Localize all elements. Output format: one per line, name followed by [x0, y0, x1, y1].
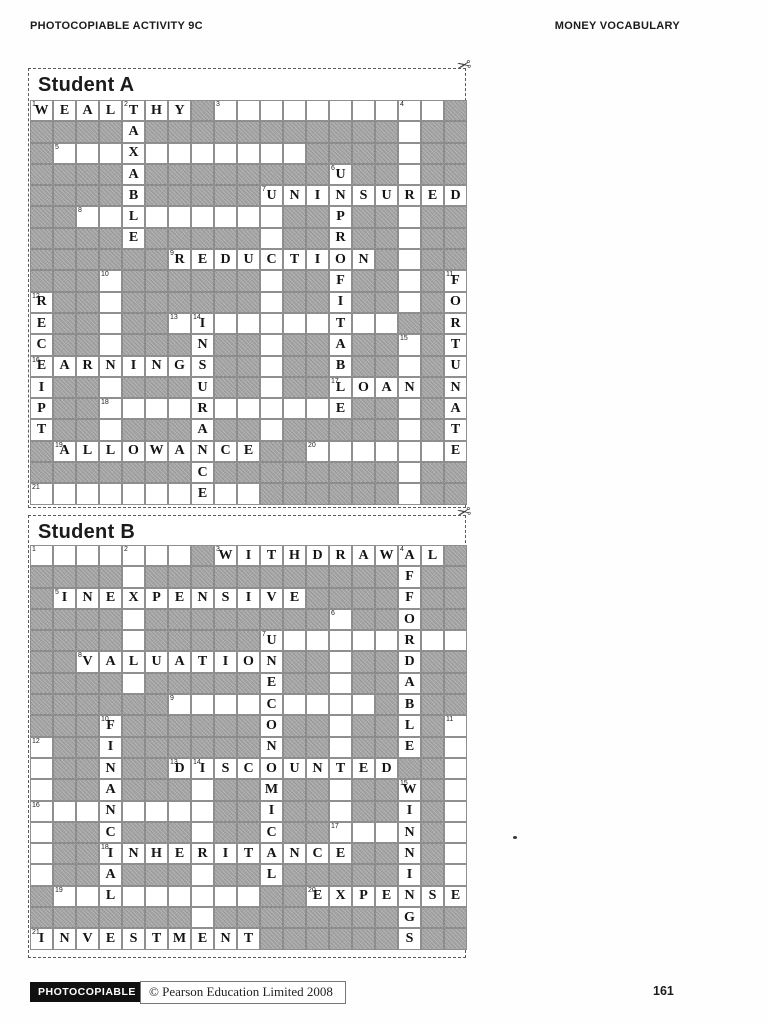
answer-cell[interactable]: O: [260, 715, 283, 736]
answer-cell[interactable]: [145, 886, 168, 907]
answer-cell[interactable]: N: [398, 886, 421, 907]
answer-cell[interactable]: [260, 292, 283, 313]
answer-cell[interactable]: 1W: [30, 100, 53, 121]
answer-cell[interactable]: [168, 483, 191, 504]
answer-cell[interactable]: [76, 545, 99, 566]
answer-cell[interactable]: L: [122, 651, 145, 672]
answer-cell[interactable]: [283, 143, 306, 164]
answer-cell[interactable]: [53, 801, 76, 822]
answer-cell[interactable]: R: [76, 356, 99, 377]
answer-cell[interactable]: D: [444, 185, 467, 206]
answer-cell[interactable]: 21I: [30, 928, 53, 949]
answer-cell[interactable]: N: [191, 441, 214, 462]
answer-cell[interactable]: T: [260, 545, 283, 566]
answer-cell[interactable]: T: [145, 928, 168, 949]
answer-cell[interactable]: A: [329, 334, 352, 355]
answer-cell[interactable]: [214, 313, 237, 334]
answer-cell[interactable]: [444, 758, 467, 779]
answer-cell[interactable]: L: [76, 441, 99, 462]
answer-cell[interactable]: 19A: [53, 441, 76, 462]
answer-cell[interactable]: 19: [53, 886, 76, 907]
answer-cell[interactable]: 18I: [99, 843, 122, 864]
answer-cell[interactable]: E: [421, 185, 444, 206]
answer-cell[interactable]: O: [398, 609, 421, 630]
answer-cell[interactable]: X: [122, 588, 145, 609]
answer-cell[interactable]: [145, 545, 168, 566]
answer-cell[interactable]: R: [191, 398, 214, 419]
answer-cell[interactable]: [329, 694, 352, 715]
answer-cell[interactable]: [76, 886, 99, 907]
answer-cell[interactable]: 12R: [30, 292, 53, 313]
answer-cell[interactable]: E: [99, 588, 122, 609]
answer-cell[interactable]: [99, 545, 122, 566]
answer-cell[interactable]: 21: [30, 483, 53, 504]
answer-cell[interactable]: V: [260, 588, 283, 609]
answer-cell[interactable]: [191, 822, 214, 843]
answer-cell[interactable]: [329, 715, 352, 736]
answer-cell[interactable]: L: [421, 545, 444, 566]
answer-cell[interactable]: [283, 630, 306, 651]
answer-cell[interactable]: [122, 398, 145, 419]
answer-cell[interactable]: A: [375, 377, 398, 398]
answer-cell[interactable]: [306, 100, 329, 121]
answer-cell[interactable]: V: [76, 928, 99, 949]
answer-cell[interactable]: [283, 313, 306, 334]
answer-cell[interactable]: H: [145, 100, 168, 121]
answer-cell[interactable]: 2: [122, 545, 145, 566]
answer-cell[interactable]: [375, 313, 398, 334]
answer-cell[interactable]: U: [191, 377, 214, 398]
answer-cell[interactable]: C: [30, 334, 53, 355]
answer-cell[interactable]: I: [237, 545, 260, 566]
answer-cell[interactable]: E: [191, 928, 214, 949]
answer-cell[interactable]: [191, 206, 214, 227]
answer-cell[interactable]: E: [352, 758, 375, 779]
answer-cell[interactable]: [122, 886, 145, 907]
answer-cell[interactable]: C: [260, 694, 283, 715]
answer-cell[interactable]: [214, 206, 237, 227]
answer-cell[interactable]: B: [329, 356, 352, 377]
answer-cell[interactable]: F: [398, 588, 421, 609]
answer-cell[interactable]: [260, 419, 283, 440]
answer-cell[interactable]: [122, 609, 145, 630]
answer-cell[interactable]: 1: [30, 545, 53, 566]
answer-cell[interactable]: 8: [76, 206, 99, 227]
answer-cell[interactable]: A: [398, 673, 421, 694]
answer-cell[interactable]: N: [214, 928, 237, 949]
answer-cell[interactable]: 20E: [306, 886, 329, 907]
answer-cell[interactable]: A: [99, 864, 122, 885]
answer-cell[interactable]: H: [283, 545, 306, 566]
answer-cell[interactable]: I: [306, 249, 329, 270]
answer-cell[interactable]: I: [99, 737, 122, 758]
answer-cell[interactable]: 14I: [191, 758, 214, 779]
answer-cell[interactable]: 15W: [398, 779, 421, 800]
answer-cell[interactable]: [53, 483, 76, 504]
answer-cell[interactable]: [99, 483, 122, 504]
answer-cell[interactable]: [237, 100, 260, 121]
answer-cell[interactable]: D: [375, 758, 398, 779]
answer-cell[interactable]: 8V: [76, 651, 99, 672]
answer-cell[interactable]: [375, 822, 398, 843]
answer-cell[interactable]: D: [214, 249, 237, 270]
answer-cell[interactable]: [191, 864, 214, 885]
answer-cell[interactable]: [237, 886, 260, 907]
answer-cell[interactable]: [329, 779, 352, 800]
answer-cell[interactable]: [237, 694, 260, 715]
answer-cell[interactable]: A: [99, 779, 122, 800]
answer-cell[interactable]: W: [145, 441, 168, 462]
answer-cell[interactable]: O: [444, 292, 467, 313]
answer-cell[interactable]: [398, 249, 421, 270]
answer-cell[interactable]: [260, 377, 283, 398]
answer-cell[interactable]: [145, 398, 168, 419]
answer-cell[interactable]: [214, 483, 237, 504]
answer-cell[interactable]: A: [191, 419, 214, 440]
answer-cell[interactable]: [398, 164, 421, 185]
answer-cell[interactable]: N: [122, 843, 145, 864]
answer-cell[interactable]: [191, 886, 214, 907]
answer-cell[interactable]: [375, 100, 398, 121]
answer-cell[interactable]: 6U: [329, 164, 352, 185]
answer-cell[interactable]: B: [122, 185, 145, 206]
answer-cell[interactable]: N: [53, 928, 76, 949]
answer-cell[interactable]: [398, 483, 421, 504]
answer-cell[interactable]: [398, 419, 421, 440]
answer-cell[interactable]: A: [53, 356, 76, 377]
answer-cell[interactable]: [306, 313, 329, 334]
answer-cell[interactable]: [191, 801, 214, 822]
answer-cell[interactable]: T: [444, 334, 467, 355]
answer-cell[interactable]: [99, 206, 122, 227]
answer-cell[interactable]: [260, 100, 283, 121]
answer-cell[interactable]: N: [191, 334, 214, 355]
answer-cell[interactable]: [329, 673, 352, 694]
answer-cell[interactable]: L: [398, 715, 421, 736]
answer-cell[interactable]: 17L: [329, 377, 352, 398]
answer-cell[interactable]: 13: [168, 313, 191, 334]
answer-cell[interactable]: T: [444, 419, 467, 440]
answer-cell[interactable]: 18: [99, 398, 122, 419]
answer-cell[interactable]: 2T: [122, 100, 145, 121]
answer-cell[interactable]: S: [214, 758, 237, 779]
answer-cell[interactable]: [122, 673, 145, 694]
answer-cell[interactable]: [352, 822, 375, 843]
answer-cell[interactable]: [329, 441, 352, 462]
answer-cell[interactable]: [99, 143, 122, 164]
answer-cell[interactable]: C: [306, 843, 329, 864]
answer-cell[interactable]: 16: [30, 801, 53, 822]
answer-cell[interactable]: E: [53, 100, 76, 121]
answer-cell[interactable]: [260, 270, 283, 291]
answer-cell[interactable]: R: [191, 843, 214, 864]
answer-cell[interactable]: I: [306, 185, 329, 206]
answer-cell[interactable]: [191, 694, 214, 715]
answer-cell[interactable]: A: [76, 100, 99, 121]
answer-cell[interactable]: N: [398, 843, 421, 864]
answer-cell[interactable]: [398, 206, 421, 227]
answer-cell[interactable]: 6: [329, 609, 352, 630]
answer-cell[interactable]: [53, 545, 76, 566]
answer-cell[interactable]: [352, 441, 375, 462]
answer-cell[interactable]: [168, 545, 191, 566]
answer-cell[interactable]: [237, 313, 260, 334]
answer-cell[interactable]: R: [444, 313, 467, 334]
answer-cell[interactable]: [260, 356, 283, 377]
answer-cell[interactable]: 3W: [214, 545, 237, 566]
answer-cell[interactable]: [283, 694, 306, 715]
answer-cell[interactable]: [30, 822, 53, 843]
answer-cell[interactable]: 3: [214, 100, 237, 121]
answer-cell[interactable]: [260, 398, 283, 419]
answer-cell[interactable]: [237, 398, 260, 419]
answer-cell[interactable]: [283, 398, 306, 419]
answer-cell[interactable]: [260, 143, 283, 164]
answer-cell[interactable]: I: [214, 843, 237, 864]
answer-cell[interactable]: E: [99, 928, 122, 949]
answer-cell[interactable]: O: [237, 651, 260, 672]
answer-cell[interactable]: A: [260, 843, 283, 864]
answer-cell[interactable]: A: [168, 651, 191, 672]
answer-cell[interactable]: L: [122, 206, 145, 227]
answer-cell[interactable]: E: [30, 313, 53, 334]
answer-cell[interactable]: [237, 143, 260, 164]
answer-cell[interactable]: [145, 143, 168, 164]
answer-cell[interactable]: [398, 398, 421, 419]
answer-cell[interactable]: E: [237, 441, 260, 462]
answer-cell[interactable]: M: [168, 928, 191, 949]
answer-cell[interactable]: U: [145, 651, 168, 672]
answer-cell[interactable]: L: [260, 864, 283, 885]
answer-cell[interactable]: 11F: [444, 270, 467, 291]
answer-cell[interactable]: L: [99, 441, 122, 462]
answer-cell[interactable]: F: [329, 270, 352, 291]
answer-cell[interactable]: [145, 206, 168, 227]
answer-cell[interactable]: O: [260, 758, 283, 779]
answer-cell[interactable]: [122, 801, 145, 822]
answer-cell[interactable]: [30, 779, 53, 800]
answer-cell[interactable]: R: [329, 545, 352, 566]
answer-cell[interactable]: E: [375, 886, 398, 907]
answer-cell[interactable]: I: [122, 356, 145, 377]
answer-cell[interactable]: G: [168, 356, 191, 377]
answer-cell[interactable]: [375, 630, 398, 651]
answer-cell[interactable]: [122, 630, 145, 651]
answer-cell[interactable]: [99, 313, 122, 334]
answer-cell[interactable]: 5I: [53, 588, 76, 609]
answer-cell[interactable]: [375, 441, 398, 462]
answer-cell[interactable]: N: [99, 801, 122, 822]
answer-cell[interactable]: W: [375, 545, 398, 566]
answer-cell[interactable]: [214, 886, 237, 907]
answer-cell[interactable]: M: [260, 779, 283, 800]
answer-cell[interactable]: [168, 143, 191, 164]
answer-cell[interactable]: [145, 483, 168, 504]
answer-cell[interactable]: [237, 206, 260, 227]
answer-cell[interactable]: T: [237, 843, 260, 864]
answer-cell[interactable]: I: [398, 801, 421, 822]
answer-cell[interactable]: N: [352, 249, 375, 270]
answer-cell[interactable]: I: [237, 588, 260, 609]
answer-cell[interactable]: 4: [398, 100, 421, 121]
answer-cell[interactable]: [76, 143, 99, 164]
answer-cell[interactable]: N: [76, 588, 99, 609]
answer-cell[interactable]: 9R: [168, 249, 191, 270]
answer-cell[interactable]: [30, 864, 53, 885]
answer-cell[interactable]: S: [421, 886, 444, 907]
answer-cell[interactable]: A: [99, 651, 122, 672]
answer-cell[interactable]: E: [444, 441, 467, 462]
answer-cell[interactable]: [306, 630, 329, 651]
answer-cell[interactable]: N: [191, 588, 214, 609]
answer-cell[interactable]: [145, 801, 168, 822]
answer-cell[interactable]: N: [398, 822, 421, 843]
answer-cell[interactable]: N: [260, 651, 283, 672]
answer-cell[interactable]: [191, 907, 214, 928]
answer-cell[interactable]: S: [191, 356, 214, 377]
answer-cell[interactable]: R: [329, 228, 352, 249]
answer-cell[interactable]: E: [122, 228, 145, 249]
answer-cell[interactable]: N: [398, 377, 421, 398]
answer-cell[interactable]: [122, 483, 145, 504]
answer-cell[interactable]: [329, 100, 352, 121]
answer-cell[interactable]: 7U: [260, 185, 283, 206]
answer-cell[interactable]: N: [99, 758, 122, 779]
answer-cell[interactable]: [214, 143, 237, 164]
answer-cell[interactable]: [398, 356, 421, 377]
answer-cell[interactable]: [168, 801, 191, 822]
answer-cell[interactable]: S: [214, 588, 237, 609]
answer-cell[interactable]: [352, 694, 375, 715]
answer-cell[interactable]: N: [306, 758, 329, 779]
answer-cell[interactable]: 17: [329, 822, 352, 843]
answer-cell[interactable]: [444, 864, 467, 885]
answer-cell[interactable]: N: [444, 377, 467, 398]
answer-cell[interactable]: [237, 483, 260, 504]
answer-cell[interactable]: G: [398, 907, 421, 928]
answer-cell[interactable]: 5: [53, 143, 76, 164]
answer-cell[interactable]: C: [191, 462, 214, 483]
answer-cell[interactable]: P: [30, 398, 53, 419]
answer-cell[interactable]: [421, 630, 444, 651]
answer-cell[interactable]: 11: [444, 715, 467, 736]
answer-cell[interactable]: [260, 313, 283, 334]
answer-cell[interactable]: [398, 121, 421, 142]
answer-cell[interactable]: [30, 843, 53, 864]
answer-cell[interactable]: F: [398, 566, 421, 587]
answer-cell[interactable]: A: [122, 121, 145, 142]
answer-cell[interactable]: I: [398, 864, 421, 885]
answer-cell[interactable]: Y: [168, 100, 191, 121]
answer-cell[interactable]: [168, 398, 191, 419]
answer-cell[interactable]: C: [260, 249, 283, 270]
answer-cell[interactable]: 15: [398, 334, 421, 355]
answer-cell[interactable]: [444, 822, 467, 843]
answer-cell[interactable]: [283, 100, 306, 121]
answer-cell[interactable]: [76, 801, 99, 822]
answer-cell[interactable]: D: [306, 545, 329, 566]
answer-cell[interactable]: 10: [99, 270, 122, 291]
answer-cell[interactable]: E: [444, 886, 467, 907]
answer-cell[interactable]: [398, 462, 421, 483]
answer-cell[interactable]: [306, 398, 329, 419]
answer-cell[interactable]: N: [260, 737, 283, 758]
answer-cell[interactable]: U: [444, 356, 467, 377]
answer-cell[interactable]: E: [168, 588, 191, 609]
answer-cell[interactable]: N: [145, 356, 168, 377]
answer-cell[interactable]: N: [99, 356, 122, 377]
answer-cell[interactable]: [398, 292, 421, 313]
answer-cell[interactable]: N: [283, 185, 306, 206]
answer-cell[interactable]: A: [168, 441, 191, 462]
answer-cell[interactable]: 7U: [260, 630, 283, 651]
answer-cell[interactable]: E: [329, 843, 352, 864]
answer-cell[interactable]: T: [329, 758, 352, 779]
answer-cell[interactable]: E: [191, 483, 214, 504]
answer-cell[interactable]: A: [444, 398, 467, 419]
answer-cell[interactable]: [398, 441, 421, 462]
answer-cell[interactable]: T: [191, 651, 214, 672]
answer-cell[interactable]: T: [283, 249, 306, 270]
answer-cell[interactable]: U: [375, 185, 398, 206]
answer-cell[interactable]: S: [122, 928, 145, 949]
answer-cell[interactable]: [260, 228, 283, 249]
answer-cell[interactable]: 16E: [30, 356, 53, 377]
answer-cell[interactable]: [352, 313, 375, 334]
answer-cell[interactable]: [421, 441, 444, 462]
answer-cell[interactable]: I: [30, 377, 53, 398]
answer-cell[interactable]: [329, 737, 352, 758]
answer-cell[interactable]: C: [260, 822, 283, 843]
answer-cell[interactable]: O: [329, 249, 352, 270]
answer-cell[interactable]: T: [237, 928, 260, 949]
answer-cell[interactable]: A: [352, 545, 375, 566]
answer-cell[interactable]: N: [283, 843, 306, 864]
answer-cell[interactable]: S: [398, 928, 421, 949]
answer-cell[interactable]: E: [398, 737, 421, 758]
answer-cell[interactable]: [260, 206, 283, 227]
answer-cell[interactable]: [444, 630, 467, 651]
answer-cell[interactable]: A: [122, 164, 145, 185]
answer-cell[interactable]: U: [283, 758, 306, 779]
answer-cell[interactable]: P: [329, 206, 352, 227]
answer-cell[interactable]: [76, 483, 99, 504]
answer-cell[interactable]: E: [191, 249, 214, 270]
answer-cell[interactable]: [168, 206, 191, 227]
answer-cell[interactable]: 10F: [99, 715, 122, 736]
answer-cell[interactable]: 13D: [168, 758, 191, 779]
answer-cell[interactable]: [444, 779, 467, 800]
answer-cell[interactable]: [306, 694, 329, 715]
answer-cell[interactable]: T: [329, 313, 352, 334]
answer-cell[interactable]: [30, 758, 53, 779]
answer-cell[interactable]: I: [214, 651, 237, 672]
answer-cell[interactable]: X: [122, 143, 145, 164]
answer-cell[interactable]: N: [329, 185, 352, 206]
answer-cell[interactable]: [398, 228, 421, 249]
answer-cell[interactable]: [444, 843, 467, 864]
answer-cell[interactable]: [329, 630, 352, 651]
answer-cell[interactable]: 9: [168, 694, 191, 715]
answer-cell[interactable]: [214, 398, 237, 419]
answer-cell[interactable]: L: [99, 100, 122, 121]
answer-cell[interactable]: [398, 270, 421, 291]
answer-cell[interactable]: 12: [30, 737, 53, 758]
answer-cell[interactable]: [191, 143, 214, 164]
answer-cell[interactable]: I: [329, 292, 352, 313]
answer-cell[interactable]: 20: [306, 441, 329, 462]
answer-cell[interactable]: C: [237, 758, 260, 779]
